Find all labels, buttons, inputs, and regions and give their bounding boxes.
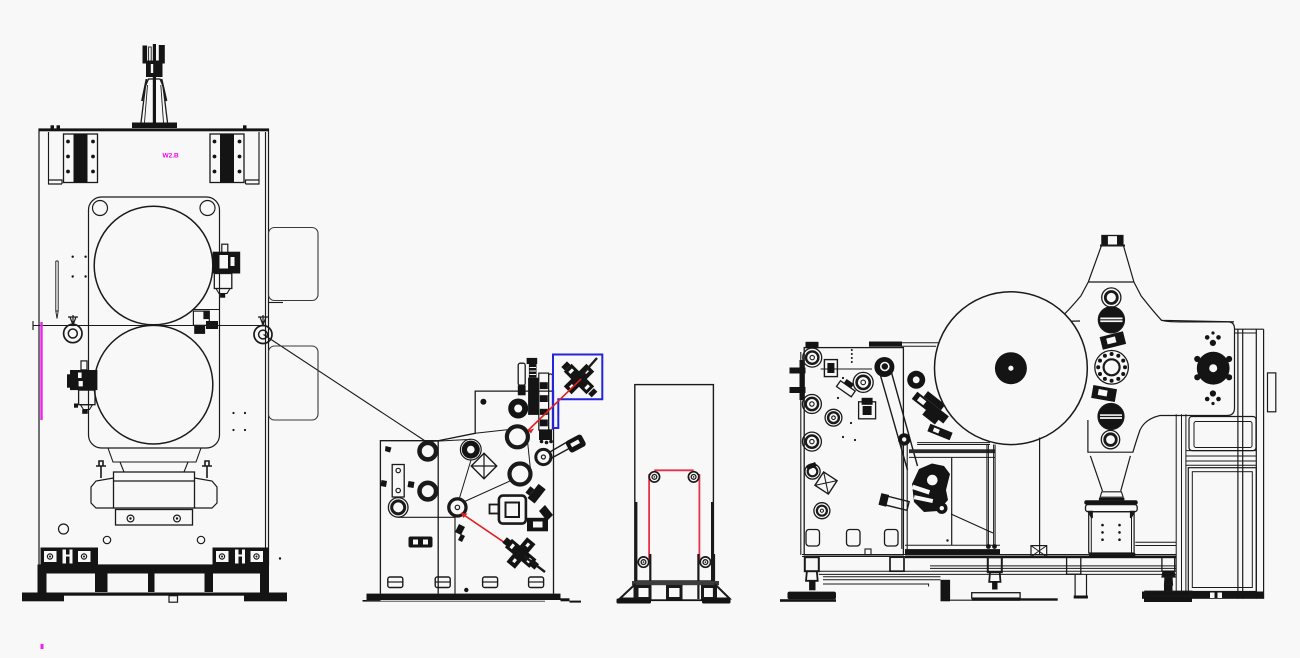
svg-text:W2.B: W2.B bbox=[163, 152, 180, 159]
